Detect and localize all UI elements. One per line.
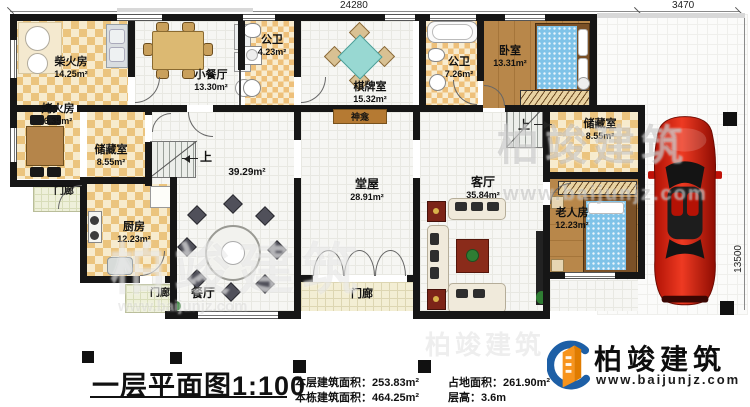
wall	[543, 105, 550, 182]
wall	[615, 272, 638, 279]
door-leaf	[239, 70, 241, 105]
sofa-chaise	[448, 283, 506, 313]
room-label-dining: 餐厅	[191, 287, 215, 301]
room-label-small-dining: 小餐厅 13.30m²	[194, 69, 228, 92]
window	[117, 14, 162, 21]
room-label-porch-sw: 门廊	[150, 288, 170, 300]
heater-chair	[47, 167, 61, 177]
sink-basin-1	[109, 29, 125, 44]
wall	[278, 311, 301, 319]
end-table-lamp	[433, 208, 439, 214]
nightstand	[551, 259, 564, 272]
room-label-chess: 棋牌室 15.32m²	[353, 81, 387, 104]
room-label-bathroom1: 公卫 4.23m²	[258, 34, 287, 57]
room-label-porch-center: 门廊	[351, 288, 373, 301]
wall	[543, 172, 638, 179]
shrine-label: 神龛	[351, 112, 369, 122]
bathtub-basin	[432, 24, 473, 40]
pillow	[578, 29, 588, 56]
floor-plan-canvas: 神龛 柴火房 14.25m² 烤火房 6.35m² 储藏室 8.55m² 门廊 …	[0, 0, 750, 407]
room-label-elder: 老人房 12.23m²	[555, 207, 589, 230]
brand-logo-icon	[547, 336, 592, 394]
wall	[238, 14, 245, 70]
sink-basin-2	[109, 47, 125, 62]
cushion	[430, 233, 439, 245]
car-top-view	[648, 114, 722, 310]
dimension-width-side: 3470	[672, 0, 694, 11]
column-marker	[723, 112, 737, 126]
cushion	[473, 289, 485, 298]
lazy-susan	[221, 241, 245, 265]
stat-floor-height: 层高：3.6m	[448, 389, 506, 405]
bedside-stool	[577, 77, 590, 90]
stat-floor-area: 本层建筑面积：253.83m²	[295, 374, 419, 390]
dimension-width-main: 24280	[340, 0, 368, 11]
room-label-bedroom: 卧室 13.31m²	[493, 45, 527, 68]
burner	[90, 216, 99, 225]
heater-table	[26, 126, 64, 166]
hall-area-label: 39.29m²	[228, 167, 265, 179]
room-label-porch-left: 门廊	[54, 186, 74, 198]
wall	[413, 311, 550, 319]
eave-line	[117, 8, 253, 12]
shrine-altar: 神龛	[333, 109, 387, 124]
stat-value: 253.83m²	[372, 377, 419, 389]
end-table-lamp	[433, 296, 439, 302]
wall	[213, 105, 301, 112]
cushion	[456, 289, 468, 298]
wall	[419, 14, 426, 105]
wall	[638, 105, 645, 279]
wall	[294, 14, 301, 77]
stat-building-area: 本栋建筑面积：464.25m²	[295, 389, 419, 405]
dining-chair	[182, 69, 195, 79]
stat-value: 261.90m²	[503, 377, 550, 389]
column-marker	[720, 301, 734, 315]
wall	[80, 177, 147, 184]
wall	[128, 14, 135, 77]
dimension-line-right	[744, 18, 745, 310]
room-label-firewood: 柴火房 14.25m²	[54, 56, 88, 79]
cushion	[430, 267, 439, 279]
pillow	[588, 202, 624, 214]
title-underline	[90, 396, 287, 398]
dining-chair	[203, 43, 213, 56]
wall	[294, 105, 301, 140]
bed-mattress	[537, 26, 577, 89]
kitchen-sink	[107, 257, 133, 275]
wall	[413, 105, 420, 140]
stat-value: 3.6m	[481, 392, 506, 404]
stat-label: 本栋建筑面积：	[295, 392, 372, 404]
watermark-brand-text: 柏竣建筑	[425, 325, 545, 362]
wall	[77, 105, 187, 112]
window	[385, 14, 415, 21]
stairs-up-label-left: 上	[200, 148, 212, 165]
wash-basin	[429, 74, 446, 91]
column-marker	[82, 351, 94, 363]
stat-value: 464.25m²	[372, 392, 419, 404]
washing-machine-drum	[246, 49, 258, 61]
wash-basin	[243, 79, 261, 97]
heater-chair	[30, 167, 44, 177]
room-label-kitchen: 厨房 12.23m²	[117, 221, 151, 244]
cushion	[487, 202, 499, 211]
burner	[90, 231, 99, 240]
cushion	[430, 250, 439, 262]
brand-url: www.baijunjz.com	[596, 372, 740, 387]
terrace-floor	[550, 280, 638, 311]
eave-line	[597, 13, 745, 18]
stairs-direction-arrow	[534, 124, 552, 125]
window	[430, 14, 476, 21]
wall	[170, 177, 177, 319]
wall	[301, 275, 313, 282]
window	[10, 128, 17, 162]
wall	[413, 178, 420, 319]
wall	[505, 105, 645, 112]
window	[198, 311, 278, 319]
wall	[407, 275, 413, 282]
stairs-up-label-right: 上	[518, 116, 530, 133]
stat-label: 占地面积：	[448, 377, 503, 389]
wall	[145, 142, 152, 186]
cushion	[455, 202, 467, 211]
window	[243, 14, 275, 21]
window	[505, 14, 545, 21]
window	[565, 272, 615, 279]
wall	[301, 105, 483, 112]
stat-land-area: 占地面积：261.90m²	[448, 374, 550, 390]
window	[10, 40, 17, 78]
stairs-direction-arrow	[182, 158, 198, 159]
room-label-bathroom2: 公卫 7.26m²	[445, 56, 474, 79]
room-label-living: 客厅 35.84m²	[466, 176, 500, 200]
wall	[543, 272, 565, 279]
wall	[80, 276, 140, 283]
wall	[477, 14, 484, 81]
wall	[590, 14, 597, 112]
stat-label: 层高：	[448, 392, 481, 404]
kitchen-counter-box	[150, 186, 171, 208]
wall	[165, 311, 198, 319]
toilet	[428, 48, 445, 62]
room-label-storage-right: 储藏室 8.55m²	[584, 118, 617, 141]
stove-vat-large	[25, 26, 50, 51]
wall	[543, 205, 550, 312]
small-dining-table	[152, 31, 204, 70]
coffee-table-plant	[466, 249, 479, 262]
column-marker	[170, 352, 182, 364]
column-marker	[418, 360, 431, 373]
stove-vat-small	[27, 53, 48, 74]
room-label-main-hall: 堂屋 28.91m²	[350, 178, 384, 202]
dimension-height-right: 13500	[733, 245, 744, 273]
wall	[145, 105, 152, 115]
room-label-storage-left: 储藏室 8.55m²	[95, 144, 128, 167]
cushion	[471, 202, 483, 211]
stat-label: 本层建筑面积：	[295, 377, 372, 389]
room-label-heating: 烤火房 6.35m²	[42, 103, 75, 126]
wall	[294, 178, 301, 319]
